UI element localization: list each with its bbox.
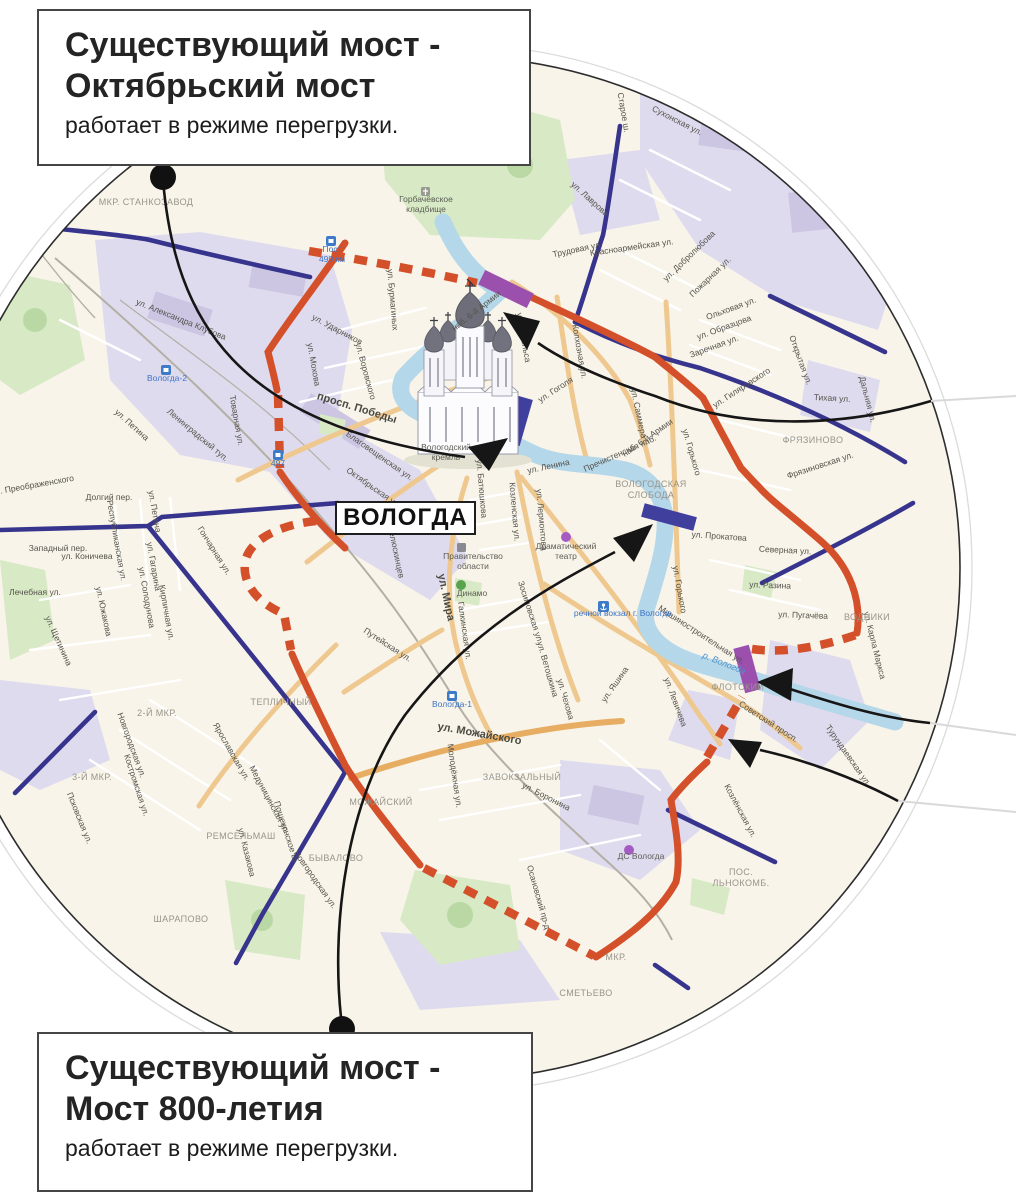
map-label: 3-Й МКР. bbox=[72, 771, 112, 782]
callout-oktyabrsky-bridge: Существующий мост - Октябрьский мост раб… bbox=[37, 9, 531, 166]
map-label: ШАРАПОВО bbox=[154, 914, 209, 924]
map-label: ВОЛОГОДСКАЯ bbox=[615, 479, 686, 489]
map-label: Вологда-1 bbox=[432, 699, 472, 709]
city-label-vologda: ВОЛОГДА bbox=[335, 501, 476, 535]
map-label: Лечебная ул. bbox=[9, 587, 61, 597]
map-label: театр bbox=[555, 551, 577, 561]
map-label: ТЕПЛИЧНЫЙ bbox=[251, 696, 312, 707]
map-label: Правительство bbox=[443, 551, 503, 561]
map-label: ВОДНИКИ bbox=[844, 612, 890, 622]
map-label: ул. Пугачёва bbox=[778, 609, 828, 621]
callout-title-line1: Существующий мост - bbox=[65, 1049, 440, 1087]
vologda-bridges-map: ул. Александра Клубоваул. ПетинаЛенингра… bbox=[0, 0, 1017, 1200]
map-label: ФЛОТСКИЙ bbox=[712, 681, 765, 692]
map-label: ЛЬНОКОМБ. bbox=[713, 878, 770, 888]
callout-title-line2: Мост 800-летия bbox=[65, 1090, 324, 1128]
map-label: Динамо bbox=[457, 588, 488, 598]
map-label: МКР. СТАНКОЗАВОД bbox=[99, 197, 194, 207]
callout-body: работает в режиме перегрузки. bbox=[65, 1135, 531, 1162]
callout-title-line2: Октябрьский мост bbox=[65, 67, 375, 105]
map-label: ЗАВОКЗАЛЬНЫЙ bbox=[483, 771, 561, 782]
map-label: Вологда-2 bbox=[147, 373, 187, 383]
map-label: Тихая ул. bbox=[814, 392, 851, 404]
map-label: 2-Й МКР. bbox=[137, 707, 177, 718]
map-label: СМЕТЬЕВО bbox=[559, 988, 612, 998]
map-label: БЫВАЛОВО bbox=[309, 853, 364, 863]
callout-body: работает в режиме перегрузки. bbox=[65, 112, 529, 139]
callout-dot-top bbox=[150, 164, 176, 190]
map-label: кладбище bbox=[406, 204, 446, 214]
map-label: Горбачёвское bbox=[399, 194, 453, 204]
map-label: ПОС. bbox=[729, 867, 753, 877]
map-label: РЕМСЕЛЬМАШ bbox=[206, 831, 275, 841]
map-label: Пост bbox=[323, 244, 342, 254]
map-label: МОЖАЙСКИЙ bbox=[349, 796, 412, 807]
map-label: СЛОБОДА bbox=[628, 490, 675, 500]
map-label: Драматический bbox=[536, 541, 597, 551]
callout-800-letiya-bridge: Существующий мост - Мост 800-летия работ… bbox=[37, 1032, 533, 1192]
callout-title-line1: Существующий мост - bbox=[65, 26, 440, 64]
map-label: ул. Разина bbox=[749, 579, 791, 590]
map-label: МКР. bbox=[605, 952, 626, 962]
callout-title: Существующий мост - Мост 800-летия bbox=[65, 1048, 531, 1131]
map-label: ДС Вологда bbox=[618, 851, 665, 861]
callout-title: Существующий мост - Октябрьский мост bbox=[65, 25, 529, 108]
map-label: 497 bbox=[271, 458, 285, 468]
map-label: ул. Коничева bbox=[61, 551, 112, 561]
city-label-text: ВОЛОГДА bbox=[343, 504, 468, 532]
map-label: области bbox=[457, 561, 489, 571]
map-label: ФРЯЗИНОВО bbox=[783, 435, 844, 445]
map-label: речной вокзал г. Вологда bbox=[574, 608, 672, 618]
map-label: 499 км bbox=[319, 254, 345, 264]
